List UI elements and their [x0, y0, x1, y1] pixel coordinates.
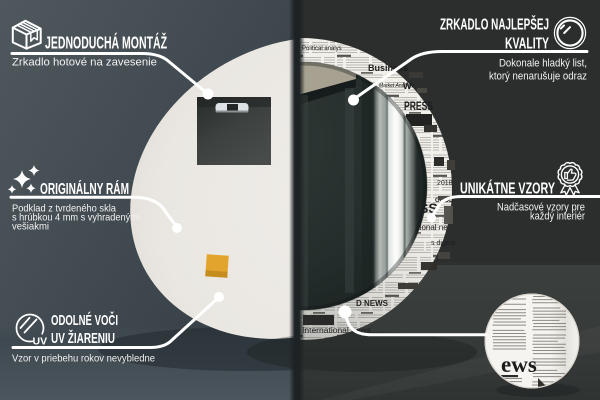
svg-text:Dokonale hladký list,: Dokonale hladký list, — [499, 58, 587, 70]
svg-text:vešiakmi: vešiakmi — [12, 222, 49, 233]
svg-text:ktorý nenarušuje odraz: ktorý nenarušuje odraz — [489, 71, 587, 83]
svg-text:Vzor v priebehu rokov nevybled: Vzor v priebehu rokov nevybledne — [12, 353, 155, 365]
svg-text:každý interiér: každý interiér — [530, 211, 585, 223]
svg-text:UNIKÁTNE VZORY: UNIKÁTNE VZORY — [460, 181, 555, 198]
svg-text:UV: UV — [33, 336, 48, 348]
svg-text:ORIGINÁLNY RÁM: ORIGINÁLNY RÁM — [40, 179, 129, 198]
svg-text:Zrkadlo hotové na zavesenie: Zrkadlo hotové na zavesenie — [12, 57, 157, 69]
svg-text:ZRKADLO NAJLEPŠEJ: ZRKADLO NAJLEPŠEJ — [440, 15, 549, 34]
svg-text:ews: ews — [501, 352, 537, 377]
svg-text:JEDNODUCHÁ MONTÁŽ: JEDNODUCHÁ MONTÁŽ — [45, 32, 167, 53]
svg-text:ODOLNÉ VOČI: ODOLNÉ VOČI — [51, 311, 118, 329]
svg-text:UV ŽIARENIU: UV ŽIARENIU — [51, 329, 115, 347]
svg-text:KVALITY: KVALITY — [505, 36, 549, 53]
